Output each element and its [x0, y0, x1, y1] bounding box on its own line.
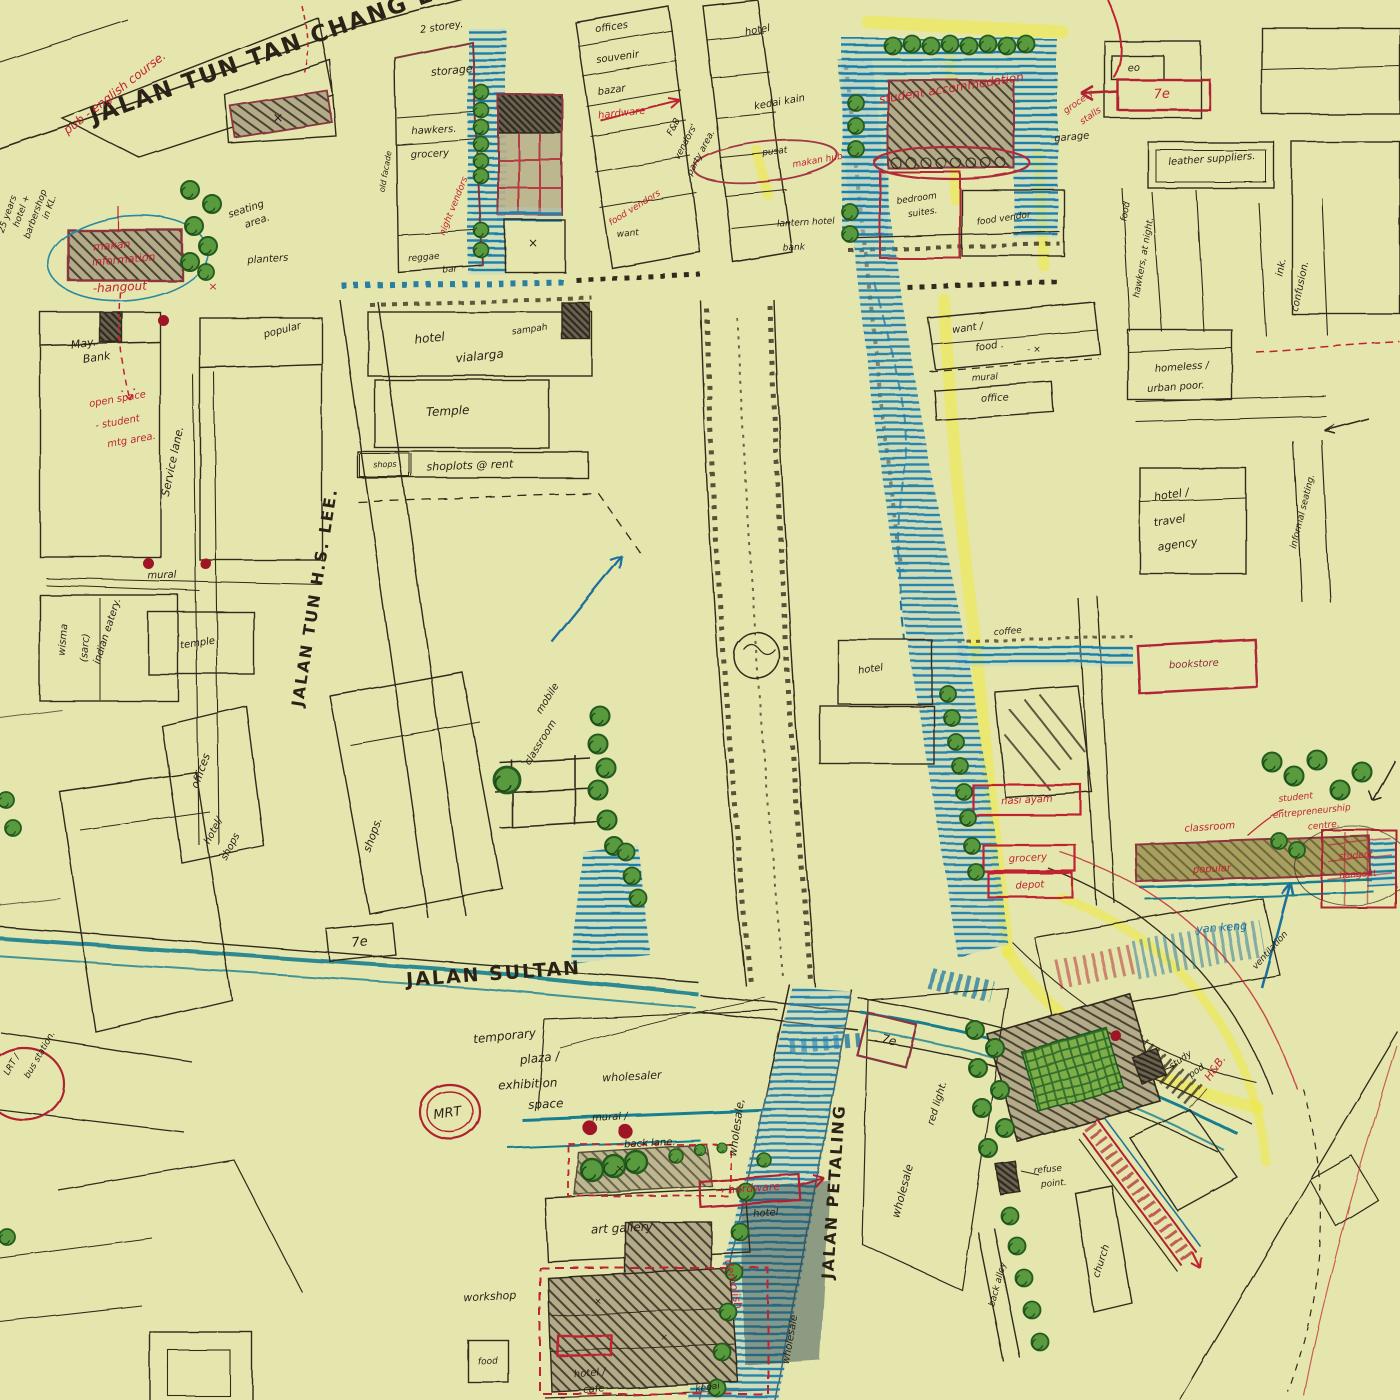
- sketch-map-canvas: JALAN TUN TAN CHANG LOCKJALAN TUN H.S. L…: [0, 0, 1400, 1400]
- map-label: grocery: [1008, 852, 1048, 865]
- map-label: hawkers.: [411, 124, 457, 137]
- map-label: eo: [1127, 63, 1140, 75]
- map-label: ×: [660, 1333, 668, 1343]
- map-label: bar: [442, 264, 459, 275]
- map-label: food: [478, 1356, 499, 1367]
- map-label: grocery: [410, 148, 450, 161]
- map-label: ×: [208, 280, 217, 293]
- map-label: Temple: [426, 403, 470, 419]
- map-label: ×: [273, 111, 284, 126]
- map-label: bank: [783, 242, 806, 253]
- map-label: ×: [528, 236, 538, 250]
- map-label: -hangout: [92, 279, 148, 296]
- map-label: mural: [147, 569, 177, 581]
- map-label: ×: [594, 1297, 602, 1307]
- map-label: mural /: [592, 1111, 630, 1124]
- map-label: 7e: [1153, 87, 1170, 103]
- map-label: mural: [971, 372, 998, 384]
- map-label: shops: [373, 460, 397, 470]
- map-label: workshop: [463, 1289, 517, 1305]
- sketch-map: JALAN TUN TAN CHANG LOCKJALAN TUN H.S. L…: [0, 0, 1400, 1400]
- map-label: space: [528, 1096, 564, 1112]
- map-label: popular: [1192, 863, 1233, 876]
- map-label: ×: [615, 1162, 624, 1175]
- map-label: hotel: [753, 1207, 779, 1220]
- map-label: want: [616, 228, 639, 240]
- map-label: - ×: [1027, 345, 1041, 355]
- map-label: office: [981, 392, 1009, 404]
- map-label: cafe: [583, 1383, 605, 1396]
- map-label: depot: [1015, 879, 1046, 892]
- map-label: 7e: [351, 934, 369, 951]
